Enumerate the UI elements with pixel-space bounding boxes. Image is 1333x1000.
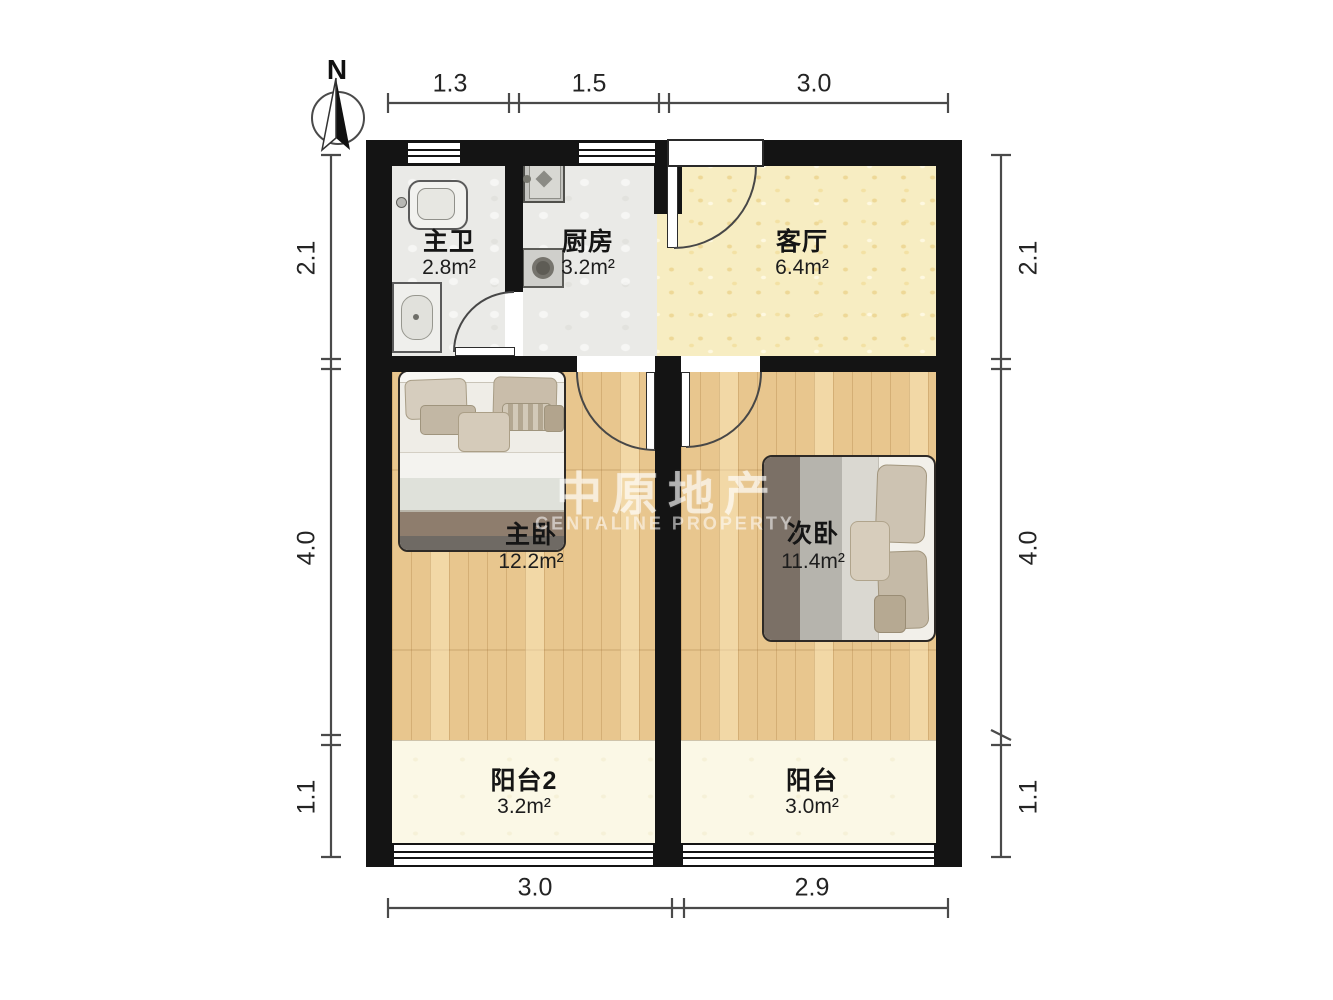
room-area-living-room: 6.4m²	[775, 256, 829, 280]
dim-left-2: 1.1	[293, 780, 322, 815]
second-door-leaf	[681, 372, 690, 447]
window-kitchen	[577, 141, 657, 165]
window-balcony2	[392, 843, 655, 867]
north-label: N	[327, 54, 347, 86]
pillow	[874, 595, 906, 633]
dim-left-1: 4.0	[293, 531, 322, 566]
room-area-balcony: 3.0m²	[785, 795, 839, 819]
dim-right-0: 2.1	[1015, 241, 1044, 276]
second-door-opening	[681, 356, 760, 372]
dim-top-1: 1.5	[572, 70, 607, 99]
dim-bottom-0: 3.0	[518, 874, 553, 903]
dim-left-0: 2.1	[293, 241, 322, 276]
master-door-opening	[577, 356, 655, 372]
floorplan-canvas: N 1.3 1.5 3.0 3.0 2.9 2.1 4.0 1.1 2.1 4.…	[0, 0, 1333, 1000]
master-door-leaf	[646, 372, 655, 450]
wall-right	[936, 140, 962, 867]
room-label-living-room: 客厅	[776, 222, 828, 258]
wall-central	[655, 356, 681, 867]
room-area-second-bedroom: 11.4m²	[781, 550, 845, 574]
room-area-balcony2: 3.2m²	[497, 795, 551, 819]
window-bathroom	[406, 141, 462, 165]
dim-top-0: 1.3	[433, 70, 468, 99]
pillow	[544, 405, 564, 432]
toilet-flush-button	[396, 197, 407, 208]
room-label-kitchen: 厨房	[562, 222, 614, 258]
pillow	[458, 412, 510, 452]
wall-left	[366, 140, 392, 867]
room-label-master-bath: 主卫	[423, 222, 475, 258]
dim-bottom-1: 2.9	[795, 874, 830, 903]
compass-icon	[312, 78, 364, 150]
toilet-icon	[396, 180, 466, 228]
room-area-master-bedroom: 12.2m²	[498, 550, 563, 574]
bathroom-door-leaf	[455, 347, 515, 356]
stove-icon	[522, 248, 564, 288]
window-balcony	[681, 843, 936, 867]
room-area-master-bath: 2.8m²	[422, 256, 476, 280]
pillow	[850, 521, 890, 581]
room-label-balcony2: 阳台2	[491, 761, 558, 797]
room-area-kitchen: 3.2m²	[561, 256, 615, 280]
watermark-subtitle: CENTALINE PROPERTY	[535, 514, 795, 535]
entry-door-opening	[667, 139, 764, 167]
room-label-balcony: 阳台	[786, 761, 838, 797]
dim-right-2: 1.1	[1015, 780, 1044, 815]
dim-top-2: 3.0	[797, 70, 832, 99]
dim-right-1: 4.0	[1015, 531, 1044, 566]
vanity-sink-icon	[392, 282, 442, 353]
entry-door-leaf	[667, 166, 678, 248]
